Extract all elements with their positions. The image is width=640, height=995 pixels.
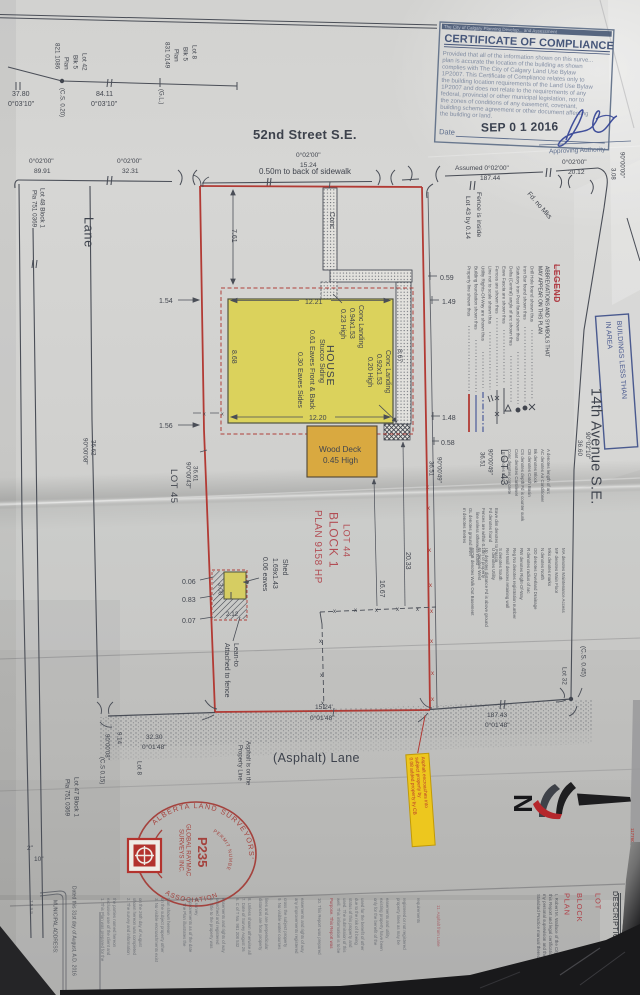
svg-text:Up denotes distance Fd is abov: Up denotes distance Fd is above ground — [484, 548, 489, 627]
svg-text:x: x — [429, 583, 432, 589]
svg-text:of survey: of survey — [194, 898, 199, 916]
svg-text:16.67: 16.67 — [378, 580, 385, 598]
svg-text:Lot 48 Block 1: Lot 48 Block 1 — [39, 188, 46, 228]
svg-text:R denotes radius of arc: R denotes radius of arc — [526, 548, 531, 594]
svg-text:1.56: 1.56 — [159, 423, 173, 430]
svg-text:x: x — [426, 485, 429, 491]
svg-text:Lot 8: Lot 8 — [191, 45, 198, 60]
svg-text:Reg No denotes registration nu: Reg No denotes registration number — [512, 548, 517, 619]
svg-text:9. No visible water courses: 9. No visible water courses — [277, 898, 282, 949]
svg-text:15.24': 15.24' — [315, 704, 333, 711]
svg-text:0°03'10": 0°03'10" — [8, 100, 35, 108]
svg-text:Property line shown thus: Property line shown thus — [467, 266, 472, 317]
svg-text:x: x — [427, 506, 430, 512]
svg-text:only for the benefit of the: only for the benefit of the — [373, 898, 378, 946]
svg-text:1.48: 1.48 — [442, 415, 456, 422]
svg-text:on the subject property other: on the subject property other — [160, 898, 165, 953]
svg-text:distances are from property: distances are from property — [258, 898, 263, 951]
svg-text:I, Robert M. Wallace of the Ci: I, Robert M. Wallace of the City — [554, 894, 559, 955]
svg-text:N denotes North: N denotes North — [540, 548, 545, 581]
svg-text:Dated this 31st day of August,: Dated this 31st day of August, A.D. 2016 — [70, 886, 76, 976]
svg-text:PLAN: PLAN — [563, 893, 572, 916]
svg-text:PLAN 9158 HP: PLAN 9158 HP — [312, 510, 323, 584]
svg-text:Lot 43 by 0.14: Lot 43 by 0.14 — [464, 196, 471, 239]
svg-text:36.62: 36.62 — [90, 440, 97, 456]
svg-text:0.61 Eaves Front & Back: 0.61 Eaves Front & Back — [308, 330, 317, 410]
svg-text:exclusive use of the client an: exclusive use of the client and — [106, 898, 111, 956]
svg-text:Bk denotes Block: Bk denotes Block — [533, 449, 538, 484]
svg-text:Purpose. This Report was: Purpose. This Report was — [329, 898, 334, 949]
svg-text:Stucco Siding: Stucco Siding — [318, 339, 327, 383]
svg-text:GLOBAL RAYMAC: GLOBAL RAYMAC — [185, 824, 192, 877]
svg-text:1.69x1.43: 1.69x1.43 — [271, 558, 278, 589]
svg-text:BLOCK 1: BLOCK 1 — [326, 512, 340, 568]
svg-text:0°01'48": 0°01'48" — [310, 714, 335, 722]
svg-text:Wood Deck: Wood Deck — [319, 445, 362, 454]
svg-text:90°00'00": 90°00'00" — [619, 152, 625, 178]
svg-text:36.61: 36.61 — [192, 466, 199, 482]
svg-text:Assumed 0°02'00": Assumed 0°02'00" — [455, 164, 510, 172]
svg-text:90°00'43": 90°00'43" — [185, 462, 192, 489]
svg-text:this Report and legal certific: this Report and legal certification — [548, 894, 553, 958]
svg-text:Pla 751 0369: Pla 751 0369 — [64, 779, 71, 817]
svg-text:9.14: 9.14 — [116, 732, 123, 745]
svg-text:Iron Bar found shown thus: Iron Bar found shown thus — [523, 266, 528, 320]
svg-text:3. No visible encroachments ex: 3. No visible encroachments exist — [154, 898, 159, 963]
svg-text:831 0149: 831 0149 — [164, 42, 171, 69]
svg-text:Lane: Lane — [81, 217, 95, 248]
svg-text:well. This information is to b: well. This information is to be — [336, 898, 341, 954]
svg-text:11. Asphalt from Lane: 11. Asphalt from Lane — [436, 905, 441, 947]
svg-text:m denotes metres: m denotes metres — [462, 508, 467, 544]
svg-text:0.58: 0.58 — [441, 440, 455, 447]
svg-text:A denotes length of arc: A denotes length of arc — [546, 449, 551, 495]
svg-text:8.67: 8.67 — [396, 349, 403, 362]
svg-text:x: x — [430, 639, 433, 645]
svg-text:CS denotes depth Fd is counter: CS denotes depth Fd is counter sunk — [520, 449, 525, 522]
svg-text:90°02'10": 90°02'10" — [584, 432, 592, 459]
svg-text:Shed: Shed — [281, 559, 288, 575]
svg-text:0.94x1.53: 0.94x1.53 — [348, 308, 355, 339]
svg-text:8.68: 8.68 — [230, 350, 237, 364]
svg-text:90°00'08": 90°00'08" — [104, 734, 110, 760]
svg-text:OD denotes Overland Drainage: OD denotes Overland Drainage — [533, 548, 538, 610]
svg-text:90°00'49": 90°00'49" — [487, 449, 493, 475]
svg-text:0.30 Eaves Sides: 0.30 Eaves Sides — [296, 352, 305, 408]
svg-text:Utility Rights-Of-Way are show: Utility Rights-Of-Way are shown thus — [481, 266, 486, 342]
svg-text:x: x — [396, 607, 399, 613]
svg-text:Conc Landing: Conc Landing — [384, 350, 391, 393]
svg-text:MUNICIPAL ADDRESS:: MUNICIPAL ADDRESS: — [51, 900, 57, 953]
svg-text:187.43: 187.43 — [487, 712, 508, 719]
svg-text:Property Line: Property Line — [237, 745, 243, 781]
svg-text:7.61: 7.61 — [230, 229, 237, 243]
svg-text:easements and utility: easements and utility — [385, 898, 390, 939]
svg-text:N: N — [508, 794, 538, 813]
svg-text:2.12: 2.12 — [226, 611, 239, 618]
svg-text:0.23 High: 0.23 High — [339, 309, 346, 339]
svg-text:used for the benefit of other: used for the benefit of other — [360, 898, 365, 951]
svg-text:MF denotes Main Floor: MF denotes Main Floor — [554, 548, 559, 594]
svg-text:5. Title to the property was: 5. Title to the property was — [209, 898, 214, 948]
svg-text:3.08: 3.08 — [610, 168, 616, 180]
svg-text:LOT 45: LOT 45 — [168, 469, 179, 504]
svg-text:Blk 5: Blk 5 — [72, 55, 79, 69]
svg-text:10": 10" — [34, 856, 44, 863]
svg-text:10. This Report was prepared: 10. This Report was prepared — [317, 898, 322, 955]
svg-text:shown hereon was completed: shown hereon was completed — [132, 898, 137, 955]
svg-text:3.00: 3.00 — [217, 583, 224, 596]
svg-text:Conc: Conc — [328, 212, 337, 229]
svg-text:Mks denotes marks: Mks denotes marks — [547, 548, 552, 587]
svg-text:36.51: 36.51 — [428, 461, 434, 477]
svg-text:6. C of T No. 981 208 532: 6. C of T No. 981 208 532 — [235, 898, 240, 948]
svg-text:SURVEYS INC.: SURVEYS INC. — [178, 829, 185, 873]
svg-text:8. Unless shown otherwise all: 8. Unless shown otherwise all — [247, 898, 252, 955]
svg-text:0.50m to back of sidewalk: 0.50m to back of sidewalk — [259, 167, 352, 176]
svg-text:x: x — [431, 671, 434, 677]
svg-text:x: x — [319, 639, 322, 645]
svg-text:LOT 43: LOT 43 — [498, 449, 509, 486]
svg-text:lines and are perpendicular: lines and are perpendicular — [264, 898, 269, 950]
svg-text:0°03'10": 0°03'10" — [91, 100, 118, 108]
svg-text:7 5 9 9: 7 5 9 9 — [29, 900, 34, 914]
svg-text:easements and rights of way: easements and rights of way — [221, 898, 226, 954]
svg-text:1.54: 1.54 — [159, 298, 173, 305]
svg-text:32.30: 32.30 — [146, 734, 163, 741]
svg-text:32.31: 32.31 — [122, 168, 139, 175]
svg-text:0°02'00": 0°02'00" — [29, 157, 54, 165]
svg-text:MA denotes Maintenance Access: MA denotes Maintenance Access — [561, 548, 566, 613]
svg-text:Fence is inside: Fence is inside — [475, 192, 482, 238]
svg-text:0.20 High: 0.20 High — [366, 357, 373, 387]
svg-text:84.11: 84.11 — [96, 91, 113, 98]
svg-text:ABBREVIATIONS AND SYMBOLS THAT: ABBREVIATIONS AND SYMBOLS THAT — [543, 266, 549, 357]
svg-text:Plan: Plan — [63, 57, 70, 70]
svg-text:x: x — [428, 548, 431, 554]
svg-text:Attached to fence: Attached to fence — [223, 643, 230, 698]
svg-text:0°02'00": 0°02'00" — [562, 158, 587, 166]
svg-text:90°00'08": 90°00'08" — [82, 438, 89, 465]
svg-text:x: x — [354, 608, 357, 614]
svg-text:52nd Street S.E.: 52nd Street S.E. — [253, 127, 357, 142]
svg-text:4. The Plan illustrates the: 4. The Plan illustrates the — [182, 898, 187, 947]
svg-text:W denotes West: W denotes West — [477, 548, 482, 581]
svg-text:187.44: 187.44 — [480, 175, 501, 182]
svg-text:0.06 eaves: 0.06 eaves — [261, 557, 268, 592]
svg-text:Drill Hole found shown thus: Drill Hole found shown thus — [530, 266, 535, 323]
svg-text:0°01'48": 0°01'48" — [142, 743, 167, 751]
svg-text:searched and registered: searched and registered — [215, 898, 220, 945]
svg-text:RW denotes Right-Of-Way: RW denotes Right-Of-Way — [519, 548, 524, 601]
svg-text:Lot 42: Lot 42 — [81, 53, 88, 71]
svg-text:x: x — [203, 412, 206, 418]
svg-text:Line not to scale shown thus: Line not to scale shown thus — [488, 266, 493, 325]
svg-text:0°01'48": 0°01'48" — [485, 721, 510, 729]
svg-text:improvements as of the date: improvements as of the date — [188, 898, 193, 953]
svg-text:36.51: 36.51 — [479, 452, 485, 468]
svg-text:Cant denotes Cantilever: Cant denotes Cantilever — [514, 449, 519, 497]
svg-text:LEGEND: LEGEND — [552, 264, 562, 303]
svg-text:89.91: 89.91 — [34, 168, 51, 175]
svg-text:x: x — [333, 609, 336, 615]
svg-text:0.45 High: 0.45 High — [323, 456, 358, 465]
svg-text:12.20: 12.20 — [309, 415, 327, 422]
svg-text:Ret Wall denotes retaining wal: Ret Wall denotes retaining wall — [505, 548, 510, 608]
svg-text:Fd denotes found: Fd denotes found — [488, 508, 493, 543]
svg-text:P235: P235 — [195, 837, 210, 867]
svg-text:(G.L.): (G.L.) — [158, 89, 164, 104]
svg-text:x: x — [320, 673, 323, 679]
svg-text:SEP 0 1 2016: SEP 0 1 2016 — [481, 119, 559, 134]
svg-text:37.80: 37.80 — [12, 91, 30, 98]
svg-text:0.59: 0.59 — [440, 275, 454, 282]
svg-text:the parties named hereon: the parties named hereon — [112, 898, 117, 948]
svg-text:Standard Practice manual there: Standard Practice manual thereof — [536, 894, 541, 960]
svg-text:any improvements registered: any improvements registered — [294, 898, 299, 954]
svg-text:Date: Date — [439, 127, 455, 137]
svg-text:(C.S 0.15): (C.S 0.15) — [99, 757, 105, 784]
svg-text:S denotes South: S denotes South — [498, 548, 503, 581]
svg-text:BLOCK: BLOCK — [575, 893, 584, 922]
svg-text:Plan: Plan — [173, 49, 180, 62]
svg-text:easements and rights of way: easements and rights of way — [300, 898, 305, 954]
svg-text:Pla 751 0369: Pla 751 0369 — [31, 190, 38, 228]
svg-text:MAY APPEAR ON THIS PLAN: MAY APPEAR ON THIS PLAN — [536, 266, 542, 334]
svg-text:0.06: 0.06 — [182, 579, 196, 586]
svg-text:Asphalt is on the: Asphalt is on the — [245, 741, 251, 786]
svg-text:Delta (Central) angle of arc s: Delta (Central) angle of arc shown thus — [509, 266, 514, 346]
svg-text:821 1086: 821 1086 — [54, 43, 61, 70]
svg-text:(C.S. 0.45): (C.S. 0.45) — [579, 646, 586, 677]
svg-text:CB denotes Catch Basin: CB denotes Catch Basin — [527, 449, 532, 497]
svg-text:Lot 32: Lot 32 — [560, 667, 567, 685]
svg-text:36.60: 36.60 — [576, 440, 583, 456]
svg-text:registered or not registered: registered or not registered — [402, 898, 407, 950]
svg-text:property lines as may be: property lines as may be — [396, 898, 401, 945]
svg-text:7. Date of Survey August 26: 7. Date of Survey August 26 — [241, 898, 246, 952]
svg-text:x: x — [431, 697, 434, 703]
svg-text:used. The submission of this: used. The submission of this — [342, 898, 347, 952]
svg-text:Lot 47 Block 1: Lot 47 Block 1 — [73, 777, 80, 817]
svg-text:U denotes Utility: U denotes Utility — [491, 548, 496, 581]
svg-text:0.07: 0.07 — [182, 618, 196, 625]
svg-text:90°00'49": 90°00'49" — [436, 457, 442, 483]
svg-text:x: x — [375, 608, 378, 614]
svg-text:Blk 5: Blk 5 — [182, 47, 189, 61]
svg-text:0.83: 0.83 — [182, 597, 196, 604]
svg-text:WOB denotes Walk Out Basement: WOB denotes Walk Out Basement — [470, 548, 475, 616]
svg-text:AC denotes Air Conditioner: AC denotes Air Conditioner — [540, 449, 545, 502]
svg-text:2. The survey and information: 2. The survey and information — [126, 898, 131, 955]
svg-text:2": 2" — [27, 845, 34, 852]
svg-text:Fences are shown thus: Fences are shown thus — [495, 266, 500, 314]
svg-text:Conc Landing: Conc Landing — [357, 305, 364, 348]
svg-text:Statutory Iron Post found show: Statutory Iron Post found shown thus — [516, 266, 521, 342]
svg-text:x: x — [416, 607, 419, 613]
svg-text:LOT: LOT — [594, 893, 603, 910]
svg-text:existing property have been: existing property have been — [379, 898, 384, 951]
svg-text:0°02'00": 0°02'00" — [117, 157, 142, 165]
svg-text:0.92x1.53: 0.92x1.53 — [375, 354, 382, 385]
svg-text:(Asphalt) Lane: (Asphalt) Lane — [273, 751, 360, 765]
svg-text:20.33: 20.33 — [404, 552, 411, 570]
svg-text:12.21: 12.21 — [305, 299, 323, 306]
svg-text:my personal supervision and th: my personal supervision and the — [542, 894, 547, 958]
svg-text:x: x — [221, 412, 224, 418]
svg-text:0°02'00": 0°02'00" — [296, 151, 321, 159]
svg-text:LOT 44: LOT 44 — [342, 524, 352, 557]
svg-text:on the 26th day of August: on the 26th day of August — [138, 898, 143, 948]
svg-text:1. This Plan was prepared for: 1. This Plan was prepared for the — [100, 898, 105, 962]
svg-text:status of this property and: status of this property and — [348, 898, 353, 948]
svg-text:Lot 8: Lot 8 — [136, 761, 143, 776]
svg-text:due to the risk of it being: due to the risk of it being — [354, 898, 359, 945]
svg-text:Eave Fascia are shown thus: Eave Fascia are shown thus — [502, 266, 507, 324]
svg-text:x: x — [430, 609, 433, 615]
svg-text:1.49: 1.49 — [442, 299, 456, 306]
svg-text:(C.S. 0.20): (C.S. 0.20) — [59, 88, 65, 117]
svg-text:cross the subject property: cross the subject property — [283, 898, 288, 948]
svg-text:than shown hereon: than shown hereon — [166, 898, 171, 935]
svg-text:Building foundation shown thus: Building foundation shown thus — [474, 266, 479, 330]
svg-text:requirements: requirements — [416, 898, 421, 923]
svg-text:Lean-to: Lean-to — [232, 643, 239, 667]
